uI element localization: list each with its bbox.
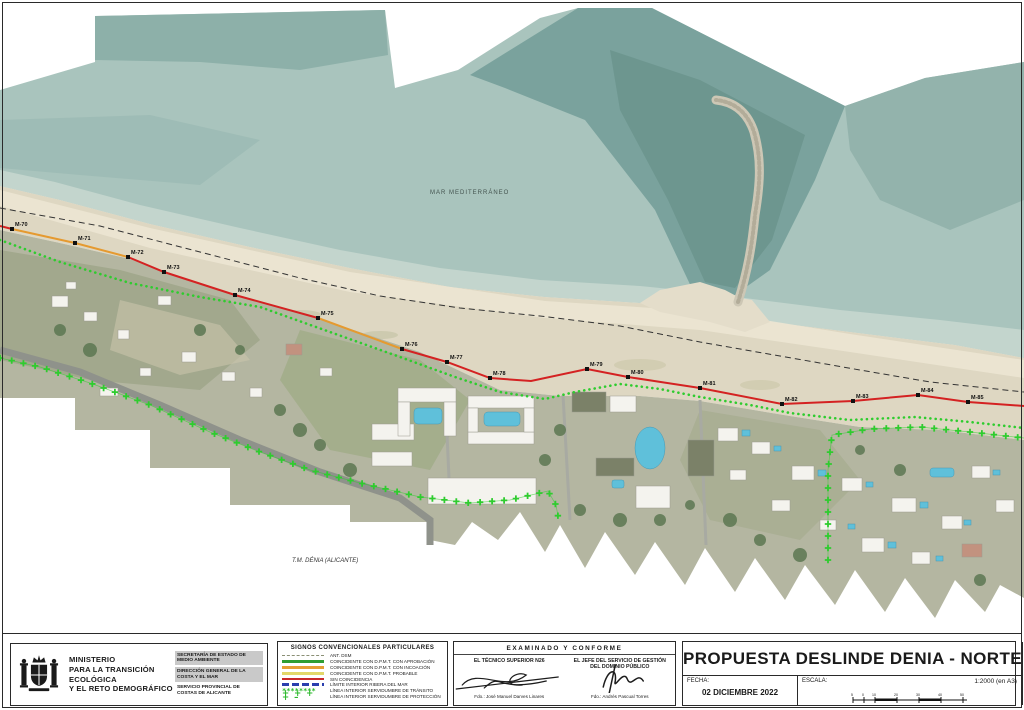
svg-text:40: 40 (938, 693, 942, 697)
approval-header: EXAMINADO Y CONFORME (454, 642, 675, 655)
svg-text:M-82: M-82 (785, 397, 798, 403)
ministry-name-line1: MINISTERIO (69, 655, 115, 664)
svg-text:M-71: M-71 (78, 236, 91, 242)
svg-text:M-81: M-81 (703, 381, 716, 387)
fecha-value: 02 DICIEMBRE 2022 (683, 688, 797, 697)
ministry-name-line2: PARA LA TRANSICIÓN ECOLÓGICA (69, 665, 155, 684)
svg-text:5: 5 (851, 693, 853, 697)
title-strip-divider (2, 633, 1022, 634)
svg-text:50: 50 (960, 693, 964, 697)
department-servicio: SERVICIO PROVINCIAL DE COSTAS DE ALICANT… (175, 684, 263, 698)
chief-signed-name: Fdo.: Andrés Pascual Torres (565, 694, 676, 699)
svg-text:M-79: M-79 (590, 362, 603, 368)
svg-text:M-72: M-72 (131, 250, 144, 256)
svg-text:M-83: M-83 (856, 394, 869, 400)
legend-title: SIGNOS CONVENCIONALES PARTICULARES (282, 645, 443, 651)
approval-left: EL TÉCNICO SUPERIOR N26 Fdo.: José Manue… (454, 655, 565, 701)
svg-text:M-77: M-77 (450, 355, 463, 361)
dashed-line-swatch-icon (282, 654, 324, 658)
ministry-name: MINISTERIO PARA LA TRANSICIÓN ECOLÓGICA … (61, 655, 175, 694)
ministry-block: MINISTERIO PARA LA TRANSICIÓN ECOLÓGICA … (10, 643, 268, 706)
ministry-name-line3: Y EL RETO DEMOGRÁFICO (69, 684, 173, 693)
svg-text:M-85: M-85 (971, 395, 984, 401)
svg-text:M-84: M-84 (921, 388, 934, 394)
fecha-label: FECHA: (687, 678, 709, 684)
escala-label: ESCALA: (802, 678, 827, 684)
plan-title: PROPUESTA DESLINDE DENIA - NORTE (683, 642, 1022, 676)
svg-text:10: 10 (872, 693, 876, 697)
fecha-cell: FECHA: 02 DICIEMBRE 2022 (683, 676, 798, 705)
green-line-swatch-icon (282, 660, 324, 664)
technician-signature (454, 663, 565, 693)
legend-block: SIGNOS CONVENCIONALES PARTICULARES ANT. … (277, 641, 448, 706)
sea-label: MAR MEDITERRÁNEO (430, 189, 509, 196)
escala-cell: ESCALA: 1:2000 (en A3) 5 0 10 20 (798, 676, 1022, 705)
legend-item: + + + + – LÍNEA INTERIOR SERVIDUMBRE DE … (282, 694, 443, 700)
title-block: PROPUESTA DESLINDE DENIA - NORTE PLANO: … (682, 641, 1016, 706)
svg-text:M-75: M-75 (321, 311, 334, 317)
svg-text:M-74: M-74 (238, 288, 251, 294)
approval-right: EL JEFE DEL SERVICIO DE GESTIÓN DEL DOMI… (565, 655, 676, 701)
map-svg: M-70M-71M-72M-73M-74M-75M-76M-77M-78M-79… (0, 0, 1024, 633)
municipality-label: T.M. DÉNIA (ALICANTE) (292, 557, 358, 564)
green-plus-swatch-icon: + + + + – (282, 694, 324, 698)
svg-text:20: 20 (894, 693, 898, 697)
svg-text:30: 30 (916, 693, 920, 697)
approval-block: EXAMINADO Y CONFORME EL TÉCNICO SUPERIOR… (453, 641, 676, 706)
department-list: SECRETARÍA DE ESTADO DE MEDIO AMBIENTE D… (175, 651, 263, 698)
chief-signature (565, 663, 676, 693)
orange-line-swatch-icon (282, 665, 324, 669)
graphic-scale-bar: 5 0 10 20 30 40 50 (845, 691, 975, 704)
yellow-line-swatch-icon (282, 671, 324, 675)
plan-sheet: M-70M-71M-72M-73M-74M-75M-76M-77M-78M-79… (0, 0, 1024, 710)
svg-text:M-78: M-78 (493, 371, 506, 377)
svg-text:M-70: M-70 (15, 222, 28, 228)
department-secretaria: SECRETARÍA DE ESTADO DE MEDIO AMBIENTE (175, 651, 263, 665)
red-line-swatch-icon (282, 677, 324, 681)
svg-text:M-80: M-80 (631, 370, 644, 376)
svg-text:M-73: M-73 (167, 265, 180, 271)
svg-text:M-76: M-76 (405, 342, 418, 348)
technician-signed-name: Fdo.: José Manuel Darves Linares (454, 694, 565, 699)
department-direccion: DIRECCIÓN GENERAL DE LA COSTA Y EL MAR (175, 667, 263, 681)
escala-value: 1:2000 (en A3) (974, 678, 1017, 685)
spain-coat-of-arms-icon (17, 651, 61, 699)
svg-text:0: 0 (862, 693, 864, 697)
